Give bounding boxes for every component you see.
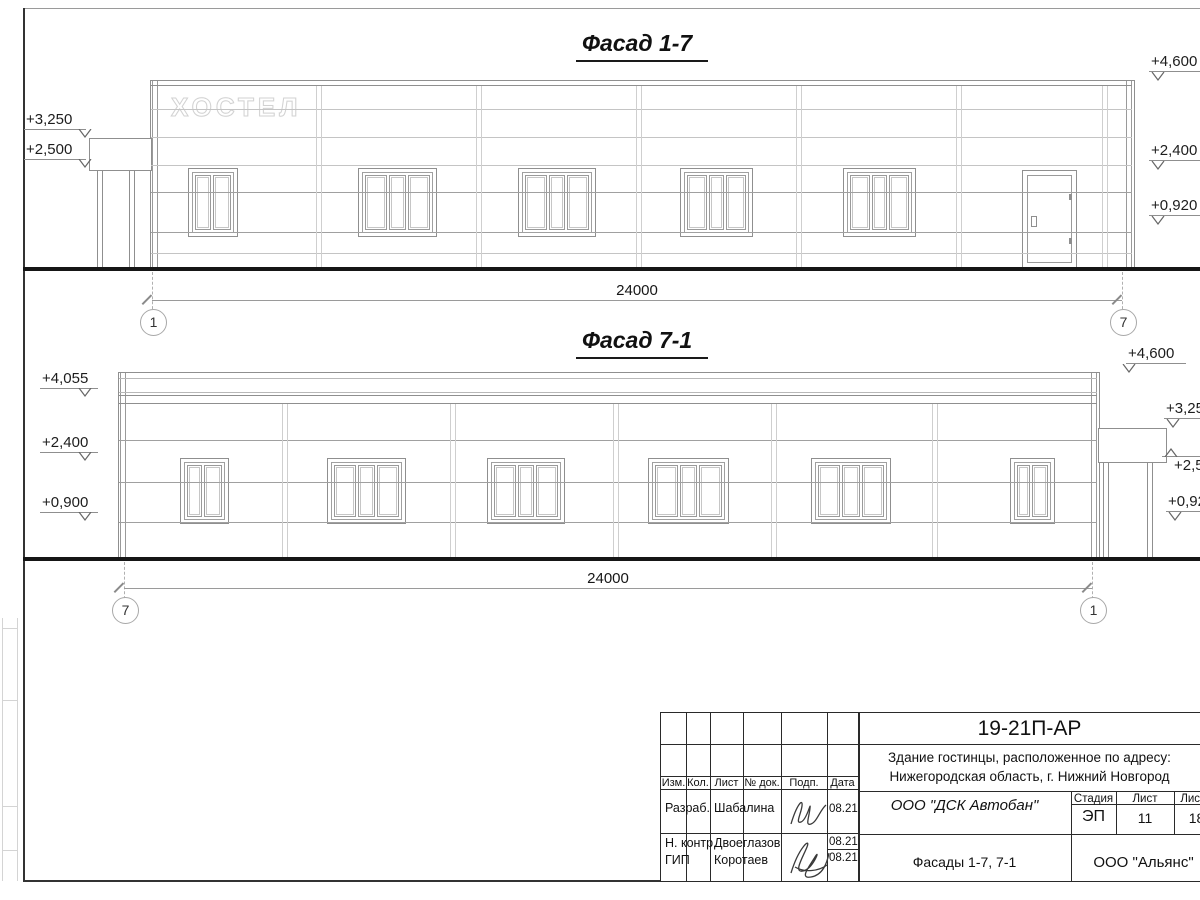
window-frame <box>362 172 433 233</box>
elevation-mark: +4,600 <box>1149 53 1200 72</box>
window-pane <box>213 175 231 230</box>
title-block: 19-21П-АР Здание гостинцы, расположенное… <box>660 712 1200 882</box>
siding-line <box>119 395 1097 396</box>
company: ООО "Альянс" <box>1071 854 1200 871</box>
elevation-mark: +2,400 <box>1149 142 1200 161</box>
axis-bubble: 1 <box>1080 597 1107 624</box>
panel-joint <box>450 404 456 557</box>
window-pane <box>358 465 375 517</box>
window-glass <box>728 177 744 228</box>
window-glass <box>864 467 882 515</box>
window-frame <box>847 172 912 233</box>
project-title-line1: Здание гостинцы, расположенное по адресу… <box>888 750 1171 765</box>
window-glass <box>367 177 385 228</box>
window-frame <box>815 462 887 520</box>
elevation-mark: +2,500 <box>24 141 86 160</box>
window <box>518 168 596 237</box>
drawing-sheet: Фасад 1-7 ХОСТЕЛ +3,250 +2,500 +4,600 +2… <box>0 0 1200 900</box>
window-pane <box>204 465 222 517</box>
window-glass <box>336 467 354 515</box>
elevation-arrow-icon <box>1164 448 1178 457</box>
window-glass <box>657 467 676 515</box>
window-pane <box>334 465 356 517</box>
window-frame <box>652 462 725 520</box>
document-code: 19-21П-АР <box>858 717 1200 741</box>
window-glass <box>215 177 229 228</box>
window-pane <box>655 465 678 517</box>
row-date: 08.21 <box>829 803 858 815</box>
elevation-arrow-icon <box>1122 364 1136 373</box>
dimension-label: 24000 <box>152 282 1122 299</box>
window-pane <box>377 465 399 517</box>
window-pane <box>726 175 746 230</box>
signature <box>787 794 831 832</box>
col-header-kol: Кол. <box>686 777 710 789</box>
window-glass <box>852 177 868 228</box>
panel-joint <box>932 404 938 557</box>
window-frame <box>684 172 749 233</box>
binding-margin-tick <box>2 628 17 629</box>
window <box>180 458 229 524</box>
window-glass <box>551 177 564 228</box>
frame-left-line <box>23 8 25 882</box>
window-pane <box>187 465 202 517</box>
window-pane <box>525 175 547 230</box>
row-name: Шабалина <box>714 801 774 815</box>
window-frame <box>522 172 592 233</box>
stage-value: ЭП <box>1071 808 1116 826</box>
ground-line-facade1 <box>23 267 1200 271</box>
window-glass <box>569 177 587 228</box>
col-header-data: Дата <box>827 777 858 789</box>
panel-joint <box>1102 86 1108 267</box>
row-role: Разраб. <box>665 801 710 815</box>
title-block-line <box>661 789 858 790</box>
col-header-izm: Изм. <box>661 777 686 789</box>
window-frame <box>1014 462 1051 520</box>
window-pane <box>549 175 566 230</box>
binding-margin-line <box>17 618 18 881</box>
dimension-line <box>152 300 1122 301</box>
row-role: ГИП <box>665 853 690 867</box>
window-frame <box>192 172 234 233</box>
dimension-tick <box>114 582 124 592</box>
window-pane <box>518 465 535 517</box>
col-header-ndok: № док. <box>743 777 781 789</box>
door-handle-icon <box>1031 216 1037 227</box>
row-role: Н. контр. <box>665 836 717 850</box>
stage-label: Стадия <box>1071 793 1116 805</box>
window-glass <box>682 467 695 515</box>
window-glass <box>891 177 907 228</box>
window-pane <box>195 175 211 230</box>
project-title: Здание гостинцы, расположенное по адресу… <box>868 749 1191 787</box>
door-hinge-icon <box>1069 194 1072 200</box>
elevation-arrow-icon <box>78 452 92 461</box>
elevation-mark: +4,600 <box>1126 345 1186 364</box>
elevation-arrow-icon <box>1151 161 1165 170</box>
title-block-line <box>858 834 1200 835</box>
window-pane <box>536 465 558 517</box>
window-pane <box>408 175 430 230</box>
window <box>327 458 406 524</box>
window-pane <box>494 465 516 517</box>
facade2-right-corner <box>1091 373 1097 558</box>
elevation-arrow-icon <box>78 129 92 138</box>
elevation-arrow-icon <box>78 159 92 168</box>
window-glass <box>496 467 514 515</box>
window-glass <box>844 467 857 515</box>
facade1-canopy-post <box>97 170 103 267</box>
window-glass <box>206 467 220 515</box>
window-glass <box>527 177 545 228</box>
facade1-canopy <box>89 138 152 171</box>
window-pane <box>699 465 722 517</box>
window-glass <box>538 467 556 515</box>
window <box>487 458 565 524</box>
axis-bubble: 1 <box>140 309 167 336</box>
col-header-list: Лист <box>710 777 743 789</box>
window-glass <box>410 177 428 228</box>
row-name: Коротаев <box>714 853 768 867</box>
elevation-arrow-icon <box>1151 72 1165 81</box>
elevation-mark: +0,920 <box>1166 493 1200 512</box>
panel-joint <box>282 404 288 557</box>
dimension-line <box>124 588 1092 589</box>
sheets-total: 18 <box>1174 810 1200 826</box>
window-frame <box>184 462 225 520</box>
siding-line <box>119 392 1097 393</box>
drawing-title: Фасады 1-7, 7-1 <box>858 854 1071 870</box>
panel-joint <box>796 86 802 267</box>
window-glass <box>379 467 397 515</box>
facade2-canopy-post <box>1103 462 1109 558</box>
elevation-arrow-icon <box>78 388 92 397</box>
facade2-building-outline <box>118 372 1100 561</box>
hostel-sign: ХОСТЕЛ <box>171 92 302 123</box>
axis-bubble: 7 <box>112 597 139 624</box>
window-pane <box>709 175 724 230</box>
panel-joint <box>613 404 619 557</box>
window-pane <box>389 175 406 230</box>
window <box>843 168 916 237</box>
window-glass <box>874 177 885 228</box>
frame-top-line <box>23 8 1200 9</box>
window-pane <box>567 175 589 230</box>
window-glass <box>689 177 705 228</box>
window-pane <box>850 175 870 230</box>
binding-margin-tick <box>2 850 17 851</box>
elevation-mark: +2,500 <box>1172 457 1200 474</box>
elevation-arrow-icon <box>1168 512 1182 521</box>
window-pane <box>842 465 859 517</box>
title-block-line <box>781 713 782 881</box>
window-frame <box>491 462 561 520</box>
binding-margin-tick <box>2 806 17 807</box>
siding-line <box>119 482 1097 483</box>
facade2-canopy-post <box>1147 462 1153 558</box>
panel-joint <box>476 86 482 267</box>
siding-line <box>119 440 1097 441</box>
elevation-mark: +2,400 <box>40 434 98 453</box>
title-block-line <box>661 744 1200 745</box>
window <box>811 458 891 524</box>
window-glass <box>1034 467 1046 515</box>
window-pane <box>1017 465 1030 517</box>
extension-line <box>1122 272 1123 314</box>
binding-margin-line <box>2 618 3 881</box>
elevation-mark: +0,900 <box>40 494 98 513</box>
window-pane <box>818 465 840 517</box>
row-date: 08.21 <box>829 852 858 864</box>
door-hinge-icon <box>1069 238 1072 244</box>
siding-line <box>119 403 1097 404</box>
window <box>648 458 729 524</box>
window <box>680 168 753 237</box>
contractor: ООО "ДСК Автобан" <box>858 797 1071 814</box>
facade1-title: Фасад 1-7 <box>576 30 708 62</box>
sheet-number: 11 <box>1116 810 1174 826</box>
window-glass <box>1019 467 1028 515</box>
panel-joint <box>771 404 777 557</box>
elevation-arrow-icon <box>1166 419 1180 428</box>
dimension-tick <box>142 294 152 304</box>
sheet-label: Лист <box>1116 793 1174 805</box>
axis-bubble: 7 <box>1110 309 1137 336</box>
window-glass <box>701 467 720 515</box>
window-glass <box>189 467 200 515</box>
row-name: Двоеглазов <box>714 836 780 850</box>
window-glass <box>520 467 533 515</box>
elevation-arrow-icon <box>1151 216 1165 225</box>
window-pane <box>1032 465 1048 517</box>
window-pane <box>872 175 887 230</box>
window-frame <box>331 462 402 520</box>
title-block-line <box>858 791 1200 792</box>
facade2-left-corner <box>120 373 126 558</box>
facade2-title: Фасад 7-1 <box>576 327 708 359</box>
elevation-arrow-icon <box>78 512 92 521</box>
window-glass <box>711 177 722 228</box>
project-title-line2: Нижегородская область, г. Нижний Новгоро… <box>889 769 1169 784</box>
binding-margin-tick <box>2 700 17 701</box>
window <box>188 168 238 237</box>
panel-joint <box>316 86 322 267</box>
title-block-line <box>710 713 711 881</box>
window-glass <box>820 467 838 515</box>
window-glass <box>197 177 209 228</box>
window-glass <box>391 177 404 228</box>
elevation-mark: +3,250 <box>24 111 86 130</box>
facade1-canopy-post <box>129 170 135 267</box>
window-pane <box>862 465 884 517</box>
dimension-label: 24000 <box>124 570 1092 587</box>
window <box>1010 458 1055 524</box>
signature <box>785 831 833 883</box>
col-header-podp: Подп. <box>781 777 827 789</box>
row-date: 08.21 <box>829 836 858 848</box>
elevation-mark: +0,920 <box>1149 197 1200 216</box>
siding-line <box>119 378 1097 379</box>
facade2-canopy <box>1098 428 1167 463</box>
panel-joint <box>636 86 642 267</box>
sheets-label: Листов <box>1174 793 1200 805</box>
window-pane <box>687 175 707 230</box>
window-pane <box>365 175 387 230</box>
window <box>358 168 437 237</box>
ground-line-facade2 <box>23 557 1200 561</box>
window-pane <box>889 175 909 230</box>
window-glass <box>360 467 373 515</box>
panel-joint <box>956 86 962 267</box>
window-pane <box>680 465 697 517</box>
siding-line <box>119 522 1097 523</box>
elevation-mark: +3,250 <box>1164 400 1200 419</box>
elevation-mark: +4,055 <box>40 370 98 389</box>
